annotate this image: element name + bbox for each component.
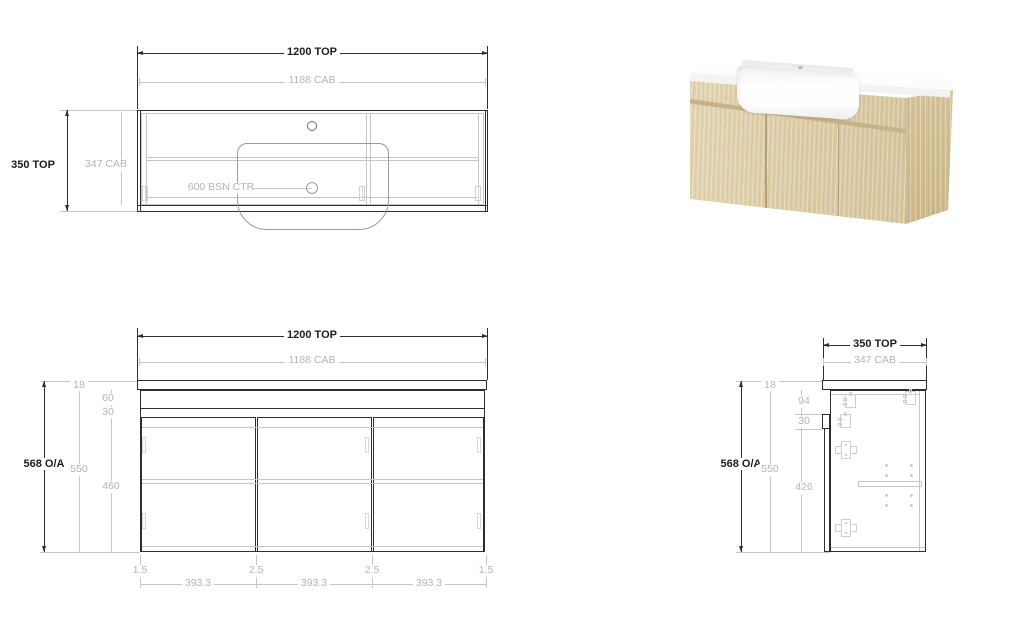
shelf-pin-holes: [885, 463, 888, 479]
front-shelf-line: [142, 427, 483, 428]
leader-line: [252, 188, 306, 189]
front-width-cab-label: 1188 CAB: [285, 355, 338, 367]
arrowhead-icon: [482, 51, 488, 55]
arrowhead-icon: [137, 334, 143, 338]
side-door-edge: [824, 417, 831, 552]
arrowhead-icon: [137, 51, 143, 55]
hinge-icon: [142, 437, 146, 453]
front-shelf-line: [142, 479, 483, 480]
front-void-bottom-line: [140, 408, 484, 409]
panel-clip-icon: [475, 186, 481, 201]
front-bottom-line: [142, 546, 483, 547]
panel-clip-icon: [142, 186, 148, 201]
arrowhead-icon: [739, 546, 743, 552]
front-door-middle: [257, 417, 372, 552]
arrowhead-icon: [739, 381, 743, 387]
dim-tick: [485, 78, 486, 86]
plan-width-top-label: 1200 TOP: [284, 46, 340, 58]
arrowhead-icon: [823, 343, 829, 347]
front-cab-height-label: 550: [67, 464, 91, 476]
extension-line: [736, 552, 830, 553]
dimension-line: [67, 110, 68, 211]
hinge-icon: [835, 519, 857, 537]
front-reveal-label: 30: [99, 407, 117, 419]
side-hinge-offset-label: 94: [795, 396, 813, 408]
front-gap-label: 1.5: [476, 565, 497, 577]
dim-tick: [139, 358, 140, 366]
shelf-pin-holes: [910, 463, 913, 479]
shelf-pin-holes: [885, 493, 888, 509]
render-tap-hole: [798, 66, 803, 69]
hinge-icon: [365, 437, 369, 453]
arrowhead-icon: [65, 205, 69, 211]
side-shelf-edge: [858, 481, 922, 487]
hinge-icon: [835, 441, 857, 459]
extension-line: [736, 381, 822, 382]
arrowhead-icon: [921, 343, 927, 347]
dim-tick: [485, 358, 486, 366]
hinge-icon: [477, 513, 481, 529]
front-door-width-label: 393.3: [413, 578, 445, 590]
front-door-height-label: 460: [99, 481, 123, 493]
side-back-panel-line: [919, 391, 920, 551]
extension-line: [40, 552, 140, 553]
front-gap-label: 2.5: [362, 565, 383, 577]
front-shelf-line: [142, 483, 483, 484]
dim-tick: [926, 358, 927, 366]
render-door-gap: [838, 124, 840, 216]
extension-line: [60, 211, 137, 212]
front-void-height-label: 60: [99, 393, 117, 405]
render-door-gap: [765, 114, 767, 208]
front-overall-height-label: 568 O/A: [21, 458, 68, 470]
plan-width-cab-label: 1188 CAB: [285, 75, 338, 87]
extension-line: [137, 46, 138, 109]
shelf-pin-holes: [910, 493, 913, 509]
drawing-canvas: 1200 TOP 1188 CAB 350 TOP 347 CAB 600 BS…: [0, 0, 1024, 628]
front-gap-label: 2.5: [246, 565, 267, 577]
extension-line: [40, 381, 137, 382]
side-depth-cab-label: 347 CAB: [851, 355, 899, 367]
dim-tick: [139, 78, 140, 86]
arrowhead-icon: [65, 110, 69, 116]
cam-lock-icon: [845, 394, 856, 408]
vanity-3d-render: [670, 40, 980, 240]
side-basin-lip: [822, 414, 831, 429]
plan-waste-tick: [308, 188, 312, 189]
extension-line: [60, 110, 137, 111]
extension-line: [487, 46, 488, 109]
side-bottom-panel-line: [831, 547, 925, 548]
plan-depth-cab-label: 347 CAB: [82, 159, 130, 171]
hinge-icon: [142, 513, 146, 529]
front-top-thickness-label: 18: [70, 380, 88, 392]
arrowhead-icon: [42, 381, 46, 387]
dim-tick: [823, 358, 824, 366]
plan-tap-hole: [307, 121, 317, 131]
side-top-thickness-label: 18: [761, 380, 779, 392]
side-cab-height-label: 550: [758, 464, 782, 476]
side-depth-top-label: 350 TOP: [850, 338, 900, 350]
front-door-width-label: 393.3: [182, 578, 214, 590]
front-counter-slab: [137, 380, 487, 390]
cam-lock-icon: [905, 391, 916, 405]
front-door-right: [373, 417, 485, 552]
plan-depth-top-label: 350 TOP: [8, 159, 58, 171]
front-width-top-label: 1200 TOP: [284, 329, 340, 341]
front-door-left: [141, 417, 256, 552]
render-basin: [737, 66, 859, 121]
cam-lock-icon: [840, 414, 851, 428]
hinge-icon: [477, 437, 481, 453]
plan-basin-centre-label: 600 BSN CTR: [185, 182, 258, 194]
side-door-height-label: 426: [792, 482, 816, 494]
hinge-icon: [365, 513, 369, 529]
front-gap-label: 1.5: [130, 565, 151, 577]
plan-counter-right-edge: [485, 111, 486, 211]
side-lip-height-label: 30: [795, 416, 813, 428]
arrowhead-icon: [42, 546, 46, 552]
arrowhead-icon: [482, 334, 488, 338]
leader-line: [795, 429, 822, 430]
front-door-width-label: 393.3: [298, 578, 330, 590]
